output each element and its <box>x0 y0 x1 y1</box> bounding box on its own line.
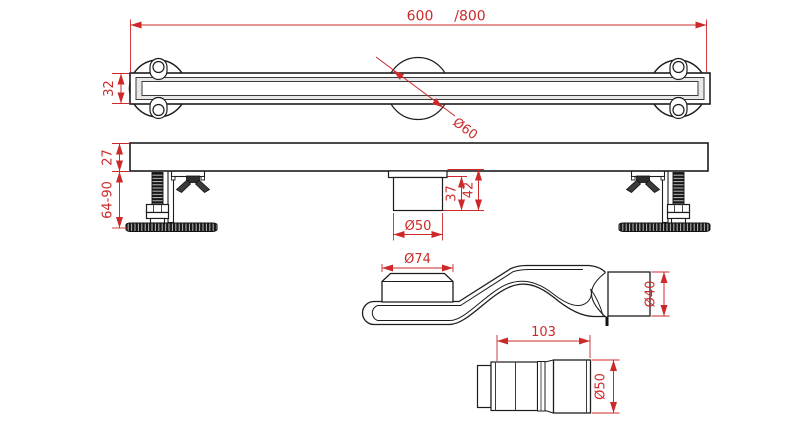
screw-hole-bottom <box>153 105 164 116</box>
connector-body-large <box>554 360 591 413</box>
connector-reducer <box>545 360 554 413</box>
dim-body-height: 27 <box>101 144 130 172</box>
connector-view: 103 Ø50 <box>478 325 620 413</box>
connector-collar <box>478 366 492 408</box>
dim-connector-length: 103 <box>497 325 590 361</box>
trap-view: Ø74 Ø40 <box>363 252 670 326</box>
dim-32: 32 <box>102 80 117 97</box>
wing-nut-wing-left <box>177 180 191 193</box>
wing-nut-wing-right <box>196 180 210 193</box>
dim-length-600: 600 <box>407 9 434 25</box>
adjustable-foot-left <box>126 171 217 232</box>
dim-103: 103 <box>531 325 556 340</box>
top-view: 600 /800 32 Ø60 <box>102 9 710 144</box>
trap-seal-tab <box>606 317 609 327</box>
foot-collar <box>151 219 165 224</box>
technical-drawing-page: 600 /800 32 Ø60 <box>0 0 800 431</box>
drain-technical-drawing: 600 /800 32 Ø60 <box>0 0 800 431</box>
channel-grate-slot <box>142 82 698 96</box>
dim-dia74: Ø74 <box>404 252 431 267</box>
bracket-tab-right <box>201 177 205 181</box>
dim-dia50-connector: Ø50 <box>594 373 609 400</box>
dim-outlet-dia: Ø50 <box>394 213 443 241</box>
outlet-flange <box>389 171 448 178</box>
dim-foot-range: 64-90 <box>101 172 128 229</box>
connector-body-small <box>491 362 538 411</box>
dim-64-90: 64-90 <box>101 181 116 219</box>
hex-nut-lower <box>147 213 169 219</box>
trap-inlet-cap <box>382 274 453 303</box>
side-view: 27 64-90 37 42 Ø50 <box>101 143 711 241</box>
screw-hole-top <box>153 62 164 73</box>
dim-length-800: /800 <box>454 9 485 25</box>
dim-trap-inlet-dia: Ø74 <box>382 252 453 272</box>
outlet-pipe <box>394 178 443 211</box>
dim-27: 27 <box>101 149 116 166</box>
adjustable-foot-right <box>619 171 710 232</box>
dim-dia60: Ø60 <box>450 115 480 143</box>
dim-dia50-outlet: Ø50 <box>405 219 432 234</box>
threaded-rod <box>152 173 163 205</box>
dim-dia40: Ø40 <box>644 281 659 308</box>
dim-37: 37 <box>445 185 460 202</box>
channel-body-profile <box>130 143 708 171</box>
hex-nut-upper <box>147 205 169 213</box>
trap-inner-left-end <box>372 306 377 321</box>
dim-connector-dia: Ø50 <box>592 360 620 413</box>
foot-base-disc <box>126 223 217 232</box>
bracket-tab-left <box>172 177 176 181</box>
dim-channel-height: 32 <box>102 74 129 104</box>
dim-42: 42 <box>462 182 477 199</box>
